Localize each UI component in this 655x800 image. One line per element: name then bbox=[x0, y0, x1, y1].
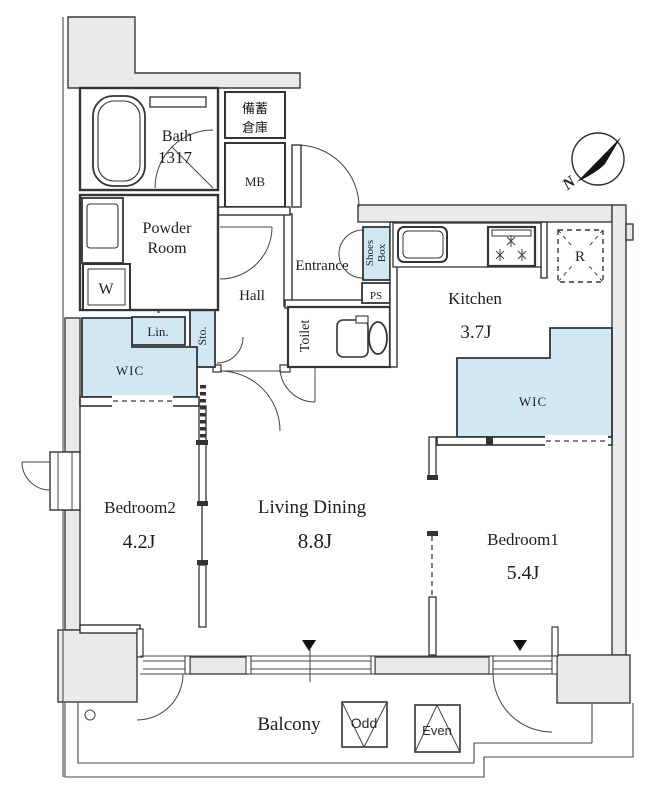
floorplan-canvas: Bath 1317 備蓄 倉庫 MB Entrance Shoes Box PS bbox=[0, 0, 655, 800]
bath-size-label: 1317 bbox=[158, 148, 193, 167]
north-label: N bbox=[559, 172, 580, 194]
wall-left-lower bbox=[65, 510, 80, 630]
sto-door-arc bbox=[217, 337, 243, 363]
living-dining: Living Dining 8.8J bbox=[258, 497, 367, 651]
window-marker-bedroom1 bbox=[513, 640, 527, 651]
front-door-leaf bbox=[292, 145, 301, 207]
bath-label: Bath bbox=[162, 128, 192, 145]
wic-left-label: WIC bbox=[116, 363, 144, 378]
spandrel-left bbox=[190, 657, 247, 674]
kitchen-sink-icon bbox=[398, 227, 447, 262]
meter-box: MB bbox=[225, 143, 285, 207]
bedroom2-area-label: 4.2J bbox=[123, 531, 156, 553]
wall-right-notch bbox=[626, 224, 633, 240]
washer-label: W bbox=[98, 281, 114, 298]
wic-right: WIC bbox=[457, 328, 612, 437]
spandrel-right bbox=[375, 657, 492, 674]
bath-counter-icon bbox=[150, 97, 206, 107]
toilet-room: Toilet bbox=[280, 307, 390, 402]
bedroom2-ld-wall bbox=[197, 406, 208, 627]
living-dining-area-label: 8.8J bbox=[298, 529, 332, 553]
bedroom1-balcony-door bbox=[493, 661, 552, 669]
balcony-drain-icon bbox=[85, 710, 95, 720]
linen-label: Lin. bbox=[147, 324, 168, 339]
powder-door-arc bbox=[220, 227, 272, 279]
powder-room: W Powder Room bbox=[80, 195, 218, 310]
bedroom2-balcony-door-arc bbox=[137, 674, 183, 720]
balcony-label: Balcony bbox=[257, 714, 321, 735]
kitchen-area-label: 3.7J bbox=[460, 322, 491, 343]
ps-right-label: PS bbox=[370, 290, 382, 302]
meter-box-label: MB bbox=[245, 174, 266, 189]
bath-room: Bath 1317 bbox=[80, 88, 218, 190]
hall-ld-door-arc bbox=[220, 371, 280, 431]
balcony-inner-rail bbox=[78, 702, 592, 763]
bedroom1-area-label: 5.4J bbox=[507, 562, 540, 584]
storage-closet-label1: 備蓄 bbox=[242, 101, 268, 116]
powder-room-label1: Powder bbox=[143, 220, 193, 237]
even-label: Even bbox=[422, 723, 452, 738]
bedroom2-bottom-wall bbox=[80, 625, 140, 633]
wall-right bbox=[612, 205, 626, 655]
wic-right-label: WIC bbox=[519, 394, 547, 409]
bedroom1: Bedroom1 5.4J bbox=[427, 435, 612, 656]
bedroom2: Bedroom2 4.2J bbox=[22, 385, 208, 657]
wall-left-upper bbox=[65, 318, 80, 452]
bedroom2-door-jamb bbox=[137, 629, 143, 657]
wall-top-left bbox=[68, 17, 300, 88]
compass-icon: N bbox=[559, 133, 624, 194]
bedroom1-balcony-door-arc bbox=[493, 673, 552, 732]
shoes-box: Shoes Box bbox=[339, 227, 390, 280]
storage-sto: Sto. bbox=[190, 306, 243, 367]
entrance-hall-wall bbox=[284, 214, 292, 306]
living-dining-label: Living Dining bbox=[258, 497, 367, 518]
powder-room-label2: Room bbox=[147, 240, 187, 257]
bedroom1-label: Bedroom1 bbox=[487, 530, 559, 549]
bedroom2-window bbox=[22, 452, 80, 510]
casement-window-arc bbox=[22, 462, 50, 490]
odd-marker: Odd bbox=[342, 702, 387, 747]
storage-closet: 備蓄 倉庫 bbox=[225, 92, 285, 138]
window-marker-ld bbox=[302, 640, 316, 651]
ps-right: PS bbox=[362, 283, 390, 303]
washer-space-icon: W bbox=[83, 264, 130, 310]
vanity-sink-icon bbox=[82, 198, 123, 263]
bedroom1-ld-wall-bottom bbox=[429, 597, 436, 655]
hall: Hall bbox=[213, 207, 290, 431]
floorplan-svg: Bath 1317 備蓄 倉庫 MB Entrance Shoes Box PS bbox=[0, 0, 655, 800]
bedroom1-ld-wall-top bbox=[429, 437, 436, 477]
pillar-bottom-right bbox=[557, 655, 630, 703]
wall-top-band bbox=[358, 205, 612, 222]
svg-text:Shoes: Shoes bbox=[364, 240, 376, 266]
kitchen-right-wall bbox=[541, 222, 547, 278]
hall-top-wall bbox=[218, 207, 290, 215]
even-marker: Even bbox=[415, 705, 460, 752]
toilet-label: Toilet bbox=[298, 320, 313, 353]
balcony: Balcony Odd Even bbox=[257, 702, 460, 752]
odd-label: Odd bbox=[351, 715, 377, 731]
sto-label: Sto. bbox=[195, 326, 209, 345]
front-door-arc bbox=[297, 145, 359, 207]
bedroom1-corner-wall bbox=[552, 627, 558, 656]
bedroom2-label: Bedroom2 bbox=[104, 498, 176, 517]
entrance-label: Entrance bbox=[295, 258, 349, 274]
refrigerator-space: R bbox=[558, 230, 603, 282]
bedroom2-balcony-door bbox=[143, 661, 186, 669]
hall-label: Hall bbox=[239, 288, 265, 304]
toilet-icon bbox=[337, 316, 387, 357]
pillar-bottom-left bbox=[58, 630, 137, 702]
storage-closet-label2: 倉庫 bbox=[242, 120, 268, 135]
svg-text:Box: Box bbox=[376, 243, 388, 262]
kitchen-label: Kitchen bbox=[448, 289, 502, 308]
refrigerator-label: R bbox=[575, 249, 585, 265]
stove-icon bbox=[488, 227, 535, 266]
bathtub-icon bbox=[93, 96, 145, 186]
